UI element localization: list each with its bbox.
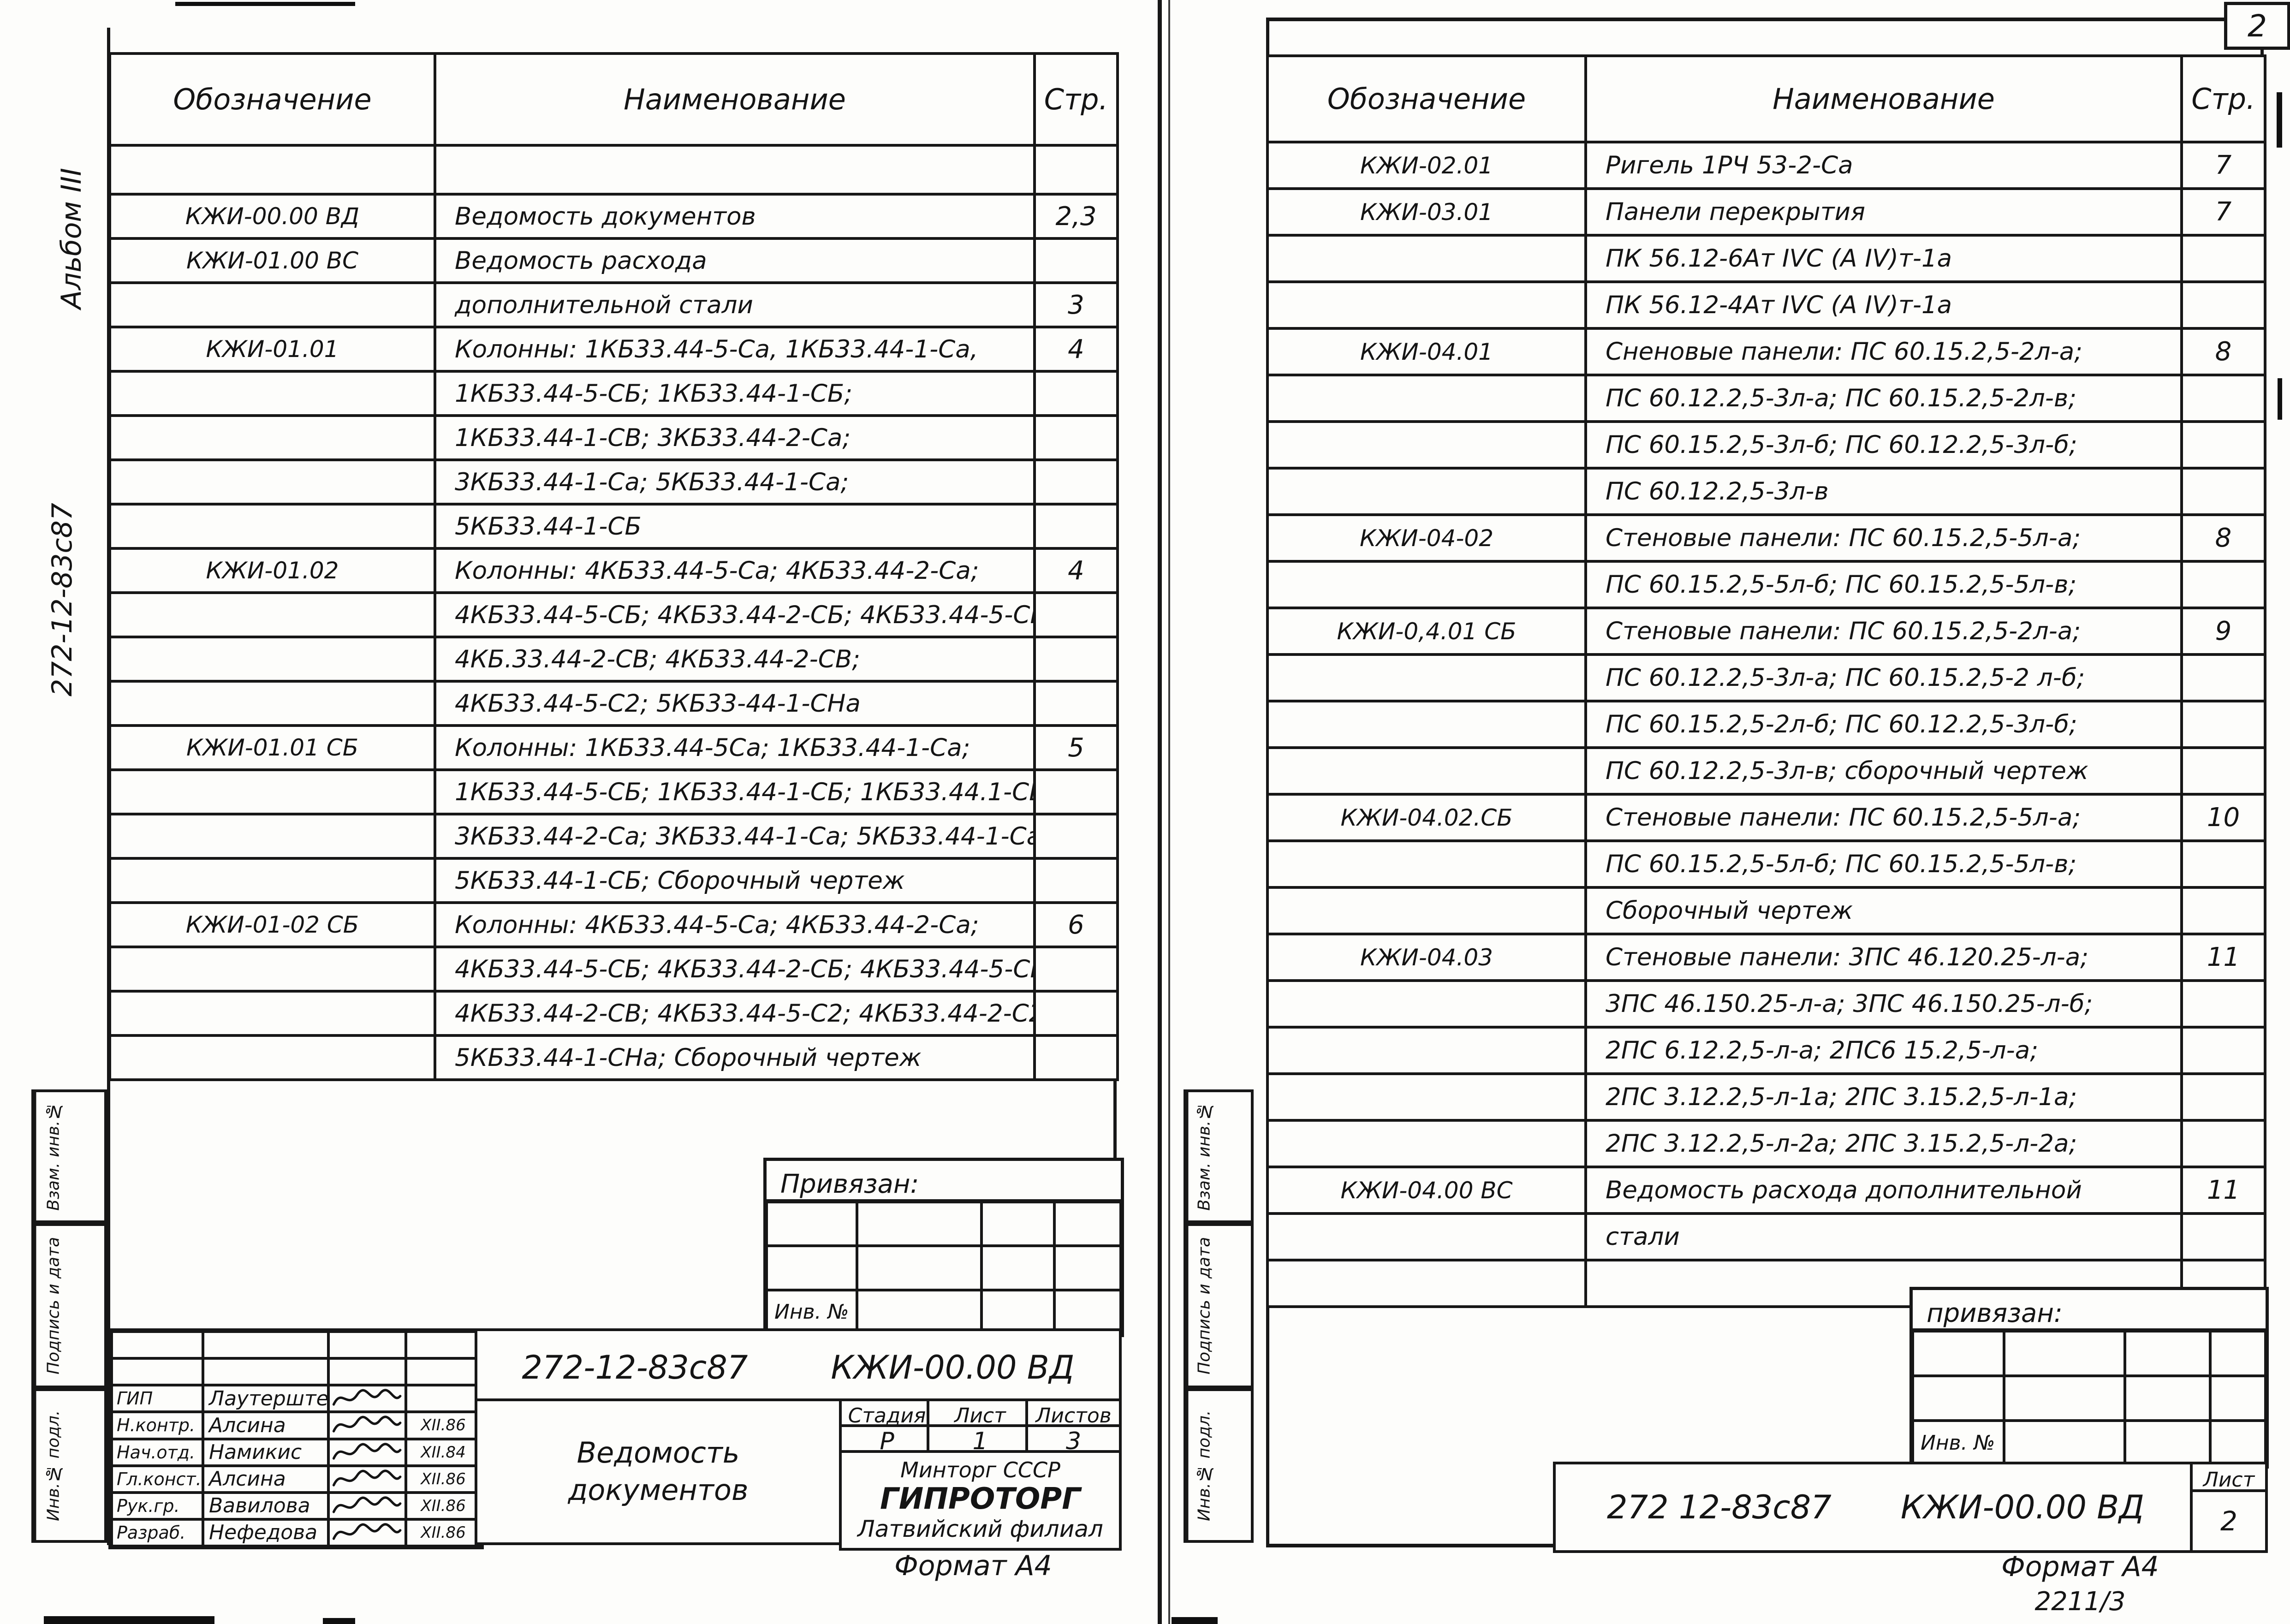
table-cell: 1КБ33.44-5-СБ; 1КБ33.44-1-СБ; 1КБ33.44.1… bbox=[435, 770, 1035, 814]
stamp-label: Взам. инв.№ bbox=[34, 1092, 71, 1220]
stamp-empty-cell bbox=[112, 1332, 203, 1358]
right-table-header: ОбозначениеНаименованиеСтр. bbox=[1267, 56, 2265, 142]
table-cell bbox=[2182, 1214, 2265, 1260]
signature-scribble-icon bbox=[328, 1412, 406, 1439]
table-cell: 4КБ33.44-2-СВ; 4КБ33.44-5-С2; 4КБ33.44-2… bbox=[435, 991, 1035, 1035]
table-cell bbox=[110, 770, 435, 814]
table-cell: 5КБ33.44-1-СБ bbox=[435, 504, 1035, 548]
left-table: ОбозначениеНаименованиеСтр. КЖИ-00.00 ВД… bbox=[108, 52, 1119, 1081]
table-row: ПС 60.12.2,5-3л-в bbox=[1267, 468, 2265, 515]
table-cell: ПС 60.12.2,5-3л-а; ПС 60.15.2,5-2л-в; bbox=[1586, 375, 2182, 422]
table-cell bbox=[1035, 371, 1118, 416]
table-cell bbox=[1035, 460, 1118, 504]
table-cell: 3 bbox=[1035, 283, 1118, 327]
table-row: КЖИ-01.01Колонны: 1КБ33.44-5-Са, 1КБ33.4… bbox=[110, 327, 1118, 371]
table-row: 3КБ33.44-1-Са; 5КБ33.44-1-Са; bbox=[110, 460, 1118, 504]
table-row: КЖИ-01-02 СБКолонны: 4КБ33.44-5-Са; 4КБ3… bbox=[110, 903, 1118, 947]
table-cell bbox=[1267, 468, 1586, 515]
binding-cell bbox=[2210, 1376, 2266, 1421]
table-cell: Колонны: 4КБ33.44-5-Са; 4КБ33.44-2-Са; bbox=[435, 548, 1035, 593]
table-row: ПС 60.15.2,5-5л-б; ПС 60.15.2,5-5л-в; bbox=[1267, 841, 2265, 887]
binding-cell bbox=[2210, 1421, 2266, 1465]
stamp-empty-cell bbox=[203, 1358, 328, 1385]
table-cell: Стеновые панели: ПС 60.15.2,5-5л-а; bbox=[1586, 515, 2182, 561]
table-cell bbox=[2182, 1027, 2265, 1074]
table-cell bbox=[1267, 981, 1586, 1027]
table-cell: Панели перекрытия bbox=[1586, 189, 2182, 235]
table-cell: Колонны: 1КБ33.44-5Са; 1КБ33.44-1-Са; bbox=[435, 726, 1035, 770]
table-cell bbox=[1267, 748, 1586, 794]
binding-cell bbox=[1913, 1376, 2004, 1421]
table-cell bbox=[1267, 1074, 1586, 1120]
table-cell bbox=[2182, 1074, 2265, 1120]
stamp-empty-cell bbox=[71, 1092, 105, 1220]
left-signature-grid: ГИПЛаутерштейнН.контр.АлсинаXII.86Нач.от… bbox=[108, 1328, 484, 1549]
stamp-label: Взам. инв.№ bbox=[1186, 1092, 1220, 1220]
signature-name: Вавилова bbox=[203, 1493, 328, 1519]
table-row: КЖИ-04.01Сненовые панели: ПС 60.15.2,5-2… bbox=[1267, 328, 2265, 375]
table-cell bbox=[2182, 1120, 2265, 1167]
left-margin-stamp-vzam: Взам. инв.№ bbox=[31, 1089, 107, 1223]
table-cell bbox=[110, 814, 435, 858]
signature-name: Лаутерштейн bbox=[203, 1385, 328, 1412]
left-table-header: ОбозначениеНаименованиеСтр. bbox=[110, 54, 1118, 145]
signature-date bbox=[406, 1385, 481, 1412]
doc-code: КЖИ-00.00 ВД bbox=[831, 1349, 1074, 1386]
table-cell: 2ПС 3.12.2,5-л-1а; 2ПС 3.15.2,5-л-1а; bbox=[1586, 1074, 2182, 1120]
table-cell: КЖИ-0,4.01 СБ bbox=[1267, 608, 1586, 654]
table-cell: 4 bbox=[1035, 327, 1118, 371]
left-format-note: Формат А4 bbox=[853, 1550, 1093, 1582]
binding-cell bbox=[2004, 1421, 2125, 1465]
table-row: ПС 60.12.2,5-3л-а; ПС 60.15.2,5-2 л-б; bbox=[1267, 654, 2265, 701]
org-line2: ГИПРОТОРГ bbox=[880, 1482, 1081, 1517]
binding-cell bbox=[2125, 1331, 2210, 1376]
table-cell bbox=[1035, 1035, 1118, 1080]
table-row: ПС 60.12.2,5-3л-в; сборочный чертеж bbox=[1267, 748, 2265, 794]
table-row: ПС 60.15.2,5-5л-б; ПС 60.15.2,5-5л-в; bbox=[1267, 561, 2265, 608]
table-row: 5КБ33.44-1-СБ; Сборочный чертеж bbox=[110, 858, 1118, 903]
table-cell: 10 bbox=[2182, 794, 2265, 841]
table-cell bbox=[1267, 1214, 1586, 1260]
table-cell bbox=[1035, 145, 1118, 194]
table-row: 1КБ33.44-5-СБ; 1КБ33.44-1-СБ; 1КБ33.44.1… bbox=[110, 770, 1118, 814]
table-cell: КЖИ-00.00 ВД bbox=[110, 194, 435, 238]
scan-artifact bbox=[44, 1616, 214, 1624]
table-cell: 4 bbox=[1035, 548, 1118, 593]
right-format-note: Формат А4 bbox=[1951, 1551, 2209, 1583]
table-cell bbox=[435, 145, 1035, 194]
doc-code: КЖИ-00.00 ВД bbox=[1901, 1488, 2144, 1526]
binding-cell bbox=[857, 1246, 981, 1290]
table-cell bbox=[2182, 841, 2265, 887]
table-cell bbox=[110, 947, 435, 991]
table-cell bbox=[2182, 375, 2265, 422]
table-cell bbox=[110, 681, 435, 726]
stamp-empty-cell bbox=[406, 1332, 481, 1358]
column-header: Стр. bbox=[2182, 56, 2265, 142]
handwritten-sheet-ref: 2211/3 bbox=[1983, 1587, 2177, 1617]
table-cell: 3КБ33.44-1-Са; 5КБ33.44-1-Са; bbox=[435, 460, 1035, 504]
table-row: 4КБ33.44-5-СБ; 4КБ33.44-2-СБ; 4КБ33.44-5… bbox=[110, 593, 1118, 637]
table-cell bbox=[2182, 282, 2265, 328]
table-cell: КЖИ-01.00 ВС bbox=[110, 238, 435, 283]
table-cell bbox=[2182, 422, 2265, 468]
table-row: Сборочный чертеж bbox=[1267, 887, 2265, 934]
signature-scribble-icon bbox=[328, 1466, 406, 1493]
table-row: КЖИ-04.03Стеновые панели: 3ПС 46.120.25-… bbox=[1267, 934, 2265, 981]
org-line1: Минторг СССР bbox=[900, 1458, 1060, 1482]
right-binding-box: привязан: Инв. № bbox=[1909, 1287, 2269, 1469]
binding-cell bbox=[1054, 1246, 1121, 1290]
table-row: 2ПС 6.12.2,5-л-а; 2ПС6 15.2,5-л-а; bbox=[1267, 1027, 2265, 1074]
table-cell bbox=[1035, 681, 1118, 726]
table-row: ПК 56.12-4Ат IVС (А IV)т-1а bbox=[1267, 282, 2265, 328]
binding-inv-label: Инв. № bbox=[767, 1290, 857, 1334]
table-row: КЖИ-02.01Ригель 1РЧ 53-2-Са7 bbox=[1267, 142, 2265, 189]
table-row: дополнительной стали3 bbox=[110, 283, 1118, 327]
table-cell bbox=[110, 1035, 435, 1080]
table-cell bbox=[1267, 282, 1586, 328]
table-cell: ПС 60.12.2,5-3л-а; ПС 60.15.2,5-2 л-б; bbox=[1586, 654, 2182, 701]
signature-date: XII.86 bbox=[406, 1493, 481, 1519]
page-edge-line bbox=[1158, 0, 1162, 1624]
left-margin-stamp-podpis: Подпись и дата bbox=[31, 1223, 107, 1388]
table-cell bbox=[110, 460, 435, 504]
table-cell: Ведомость расхода дополнительной bbox=[1586, 1167, 2182, 1214]
page-number: 2 bbox=[2248, 8, 2267, 44]
table-cell: Ведомость документов bbox=[435, 194, 1035, 238]
signature-scribble-icon bbox=[328, 1519, 406, 1546]
signature-date: XII.86 bbox=[406, 1466, 481, 1493]
stamp-empty-cell bbox=[1220, 1092, 1251, 1220]
table-row: 4КБ.33.44-2-СВ; 4КБ33.44-2-СВ; bbox=[110, 637, 1118, 681]
table-cell: дополнительной стали bbox=[435, 283, 1035, 327]
signature-role: Н.контр. bbox=[112, 1412, 203, 1439]
left-margin-stamp-inv: Инв.№ подл. bbox=[31, 1388, 107, 1543]
table-row: 3КБ33.44-2-Са; 3КБ33.44-1-Са; 5КБ33.44-1… bbox=[110, 814, 1118, 858]
table-cell bbox=[1035, 947, 1118, 991]
table-cell: КЖИ-01-02 СБ bbox=[110, 903, 435, 947]
table-cell: КЖИ-01.01 СБ bbox=[110, 726, 435, 770]
column-header: Обозначение bbox=[1267, 56, 1586, 142]
table-row: 2ПС 3.12.2,5-л-2а; 2ПС 3.15.2,5-л-2а; bbox=[1267, 1120, 2265, 1167]
table-cell: 5 bbox=[1035, 726, 1118, 770]
binding-cell bbox=[1054, 1290, 1121, 1334]
table-row: КЖИ-04.02.СБСтеновые панели: ПС 60.15.2,… bbox=[1267, 794, 2265, 841]
binding-cell bbox=[767, 1246, 857, 1290]
table-cell: КЖИ-04-02 bbox=[1267, 515, 1586, 561]
table-cell: ПС 60.12.2,5-3л-в bbox=[1586, 468, 2182, 515]
table-row bbox=[110, 145, 1118, 194]
table-cell bbox=[1267, 701, 1586, 748]
table-cell bbox=[1267, 561, 1586, 608]
table-row: ПК 56.12-6Ат IVС (А IV)т-1а bbox=[1267, 235, 2265, 282]
signature-scribble-icon bbox=[328, 1439, 406, 1466]
table-cell: 6 bbox=[1035, 903, 1118, 947]
stamp-empty-cell bbox=[328, 1332, 406, 1358]
table-cell: 4КБ33.44-5-СБ; 4КБ33.44-2-СБ; 4КБ33.44-5… bbox=[435, 947, 1035, 991]
sheet-value: 2 bbox=[2220, 1505, 2237, 1537]
table-cell: Сборочный чертеж bbox=[1586, 887, 2182, 934]
table-cell: ПС 60.15.2,5-2л-б; ПС 60.12.2,5-3л-б; bbox=[1586, 701, 2182, 748]
table-row: КЖИ-00.00 ВДВедомость документов2,3 bbox=[110, 194, 1118, 238]
binding-cell bbox=[2125, 1421, 2210, 1465]
table-cell bbox=[1035, 637, 1118, 681]
table-cell bbox=[2182, 981, 2265, 1027]
signature-role: Гл.конст. bbox=[112, 1466, 203, 1493]
signature-name: Намикис bbox=[203, 1439, 328, 1466]
table-cell bbox=[1267, 841, 1586, 887]
table-cell bbox=[110, 504, 435, 548]
table-cell: КЖИ-04.01 bbox=[1267, 328, 1586, 375]
table-cell: стали bbox=[1586, 1214, 2182, 1260]
table-row: ПС 60.15.2,5-3л-б; ПС 60.12.2,5-3л-б; bbox=[1267, 422, 2265, 468]
right-margin-stamp-podpis: Подпись и дата bbox=[1184, 1223, 1254, 1388]
table-cell bbox=[1267, 235, 1586, 282]
table-cell bbox=[110, 637, 435, 681]
signature-scribble-icon bbox=[328, 1385, 406, 1412]
left-designation-bar: 272-12-83с87 КЖИ-00.00 ВД bbox=[475, 1328, 1122, 1407]
table-cell: 11 bbox=[2182, 934, 2265, 981]
sheet-label: Лист bbox=[2203, 1468, 2255, 1492]
signature-role: ГИП bbox=[112, 1385, 203, 1412]
table-cell bbox=[1035, 593, 1118, 637]
column-header: Обозначение bbox=[110, 54, 435, 145]
binding-cell bbox=[1913, 1331, 2004, 1376]
column-header: Стр. bbox=[1035, 54, 1118, 145]
signature-role: Нач.отд. bbox=[112, 1439, 203, 1466]
table-row: 4КБ33.44-5-С2; 5КБ33-44-1-СНа bbox=[110, 681, 1118, 726]
table-cell bbox=[1035, 238, 1118, 283]
table-cell: 9 bbox=[2182, 608, 2265, 654]
table-cell: КЖИ-04.00 ВС bbox=[1267, 1167, 1586, 1214]
table-cell: 5КБ33.44-1-СНа; Сборочный чертеж bbox=[435, 1035, 1035, 1080]
binding-cell bbox=[2210, 1331, 2266, 1376]
table-cell: 2ПС 3.12.2,5-л-2а; 2ПС 3.15.2,5-л-2а; bbox=[1586, 1120, 2182, 1167]
org-line3: Латвийский филиал bbox=[857, 1516, 1103, 1543]
table-cell: 8 bbox=[2182, 328, 2265, 375]
stamp-empty-cell bbox=[1220, 1391, 1251, 1540]
signature-scribble-icon bbox=[328, 1493, 406, 1519]
stage-label: Стадия bbox=[848, 1404, 926, 1428]
scan-artifact bbox=[2278, 378, 2282, 420]
table-row: КЖИ-0,4.01 СБСтеновые панели: ПС 60.15.2… bbox=[1267, 608, 2265, 654]
binding-cell bbox=[1054, 1202, 1121, 1246]
right-designation-bar: 272 12-83с87 КЖИ-00.00 ВД bbox=[1553, 1462, 2198, 1553]
table-cell: ПС 60.15.2,5-5л-б; ПС 60.15.2,5-5л-в; bbox=[1586, 841, 2182, 887]
binding-cell bbox=[981, 1202, 1054, 1246]
table-cell bbox=[110, 283, 435, 327]
table-row: 5КБ33.44-1-СНа; Сборочный чертеж bbox=[110, 1035, 1118, 1080]
table-cell: 2,3 bbox=[1035, 194, 1118, 238]
table-cell: 7 bbox=[2182, 142, 2265, 189]
doc-title: Ведомость документов bbox=[533, 1434, 784, 1509]
table-cell bbox=[110, 593, 435, 637]
table-cell: ПК 56.12-4Ат IVС (А IV)т-1а bbox=[1586, 282, 2182, 328]
table-cell: Стеновые панели: ПС 60.15.2,5-2л-а; bbox=[1586, 608, 2182, 654]
scan-artifact bbox=[2277, 92, 2282, 148]
page-edge-line2 bbox=[1168, 0, 1170, 1624]
table-cell bbox=[110, 858, 435, 903]
table-row: ПС 60.15.2,5-2л-б; ПС 60.12.2,5-3л-б; bbox=[1267, 701, 2265, 748]
stamp-label: Инв.№ подл. bbox=[34, 1391, 71, 1540]
right-frame-top bbox=[1266, 18, 2264, 21]
stamp-empty-cell bbox=[203, 1332, 328, 1358]
table-cell bbox=[2182, 561, 2265, 608]
table-cell: Ригель 1РЧ 53-2-Са bbox=[1586, 142, 2182, 189]
table-row: 2ПС 3.12.2,5-л-1а; 2ПС 3.15.2,5-л-1а; bbox=[1267, 1074, 2265, 1120]
table-cell bbox=[1035, 858, 1118, 903]
scan-artifact bbox=[175, 2, 355, 6]
right-margin-stamp-vzam: Взам. инв.№ bbox=[1184, 1089, 1254, 1223]
signature-role: Рук.гр. bbox=[112, 1493, 203, 1519]
table-row: 1КБ33.44-1-СВ; 3КБ33.44-2-Са; bbox=[110, 416, 1118, 460]
table-row: 4КБ33.44-2-СВ; 4КБ33.44-5-С2; 4КБ33.44-2… bbox=[110, 991, 1118, 1035]
table-row: КЖИ-04-02Стеновые панели: ПС 60.15.2,5-5… bbox=[1267, 515, 2265, 561]
table-cell: 3КБ33.44-2-Са; 3КБ33.44-1-Са; 5КБ33.44-1… bbox=[435, 814, 1035, 858]
table-cell: Ведомость расхода bbox=[435, 238, 1035, 283]
binding-cell bbox=[2004, 1376, 2125, 1421]
table-cell bbox=[2182, 235, 2265, 282]
table-cell bbox=[2182, 701, 2265, 748]
column-header: Наименование bbox=[435, 54, 1035, 145]
table-cell: КЖИ-03.01 bbox=[1267, 189, 1586, 235]
binding-cell bbox=[767, 1202, 857, 1246]
table-cell bbox=[110, 416, 435, 460]
table-cell bbox=[1267, 1120, 1586, 1167]
table-cell bbox=[1267, 887, 1586, 934]
table-cell: ПС 60.15.2,5-5л-б; ПС 60.15.2,5-5л-в; bbox=[1586, 561, 2182, 608]
table-cell bbox=[1267, 1260, 1586, 1307]
binding-title: привязан: bbox=[1913, 1290, 2266, 1331]
table-cell: КЖИ-01.02 bbox=[110, 548, 435, 593]
table-row: КЖИ-01.01 СБКолонны: 1КБ33.44-5Са; 1КБ33… bbox=[110, 726, 1118, 770]
table-row: 3ПС 46.150.25-л-а; 3ПС 46.150.25-л-б; bbox=[1267, 981, 2265, 1027]
table-cell: КЖИ-04.02.СБ bbox=[1267, 794, 1586, 841]
stamp-empty-cell bbox=[1220, 1226, 1251, 1386]
left-doc-title-cell: Ведомость документов bbox=[475, 1398, 842, 1545]
binding-cell bbox=[2004, 1331, 2125, 1376]
table-cell: ПС 60.15.2,5-3л-б; ПС 60.12.2,5-3л-б; bbox=[1586, 422, 2182, 468]
right-sheet-value-cell: 2 bbox=[2190, 1489, 2268, 1553]
table-cell: ПС 60.12.2,5-3л-в; сборочный чертеж bbox=[1586, 748, 2182, 794]
table-row: 1КБ33.44-5-СБ; 1КБ33.44-1-СБ; bbox=[110, 371, 1118, 416]
scan-artifact bbox=[1172, 1617, 1218, 1624]
table-cell: Колонны: 4КБ33.44-5-Са; 4КБ33.44-2-Са; bbox=[435, 903, 1035, 947]
table-cell bbox=[1035, 991, 1118, 1035]
stamp-label: Подпись и дата bbox=[1186, 1226, 1220, 1386]
stamp-label: Подпись и дата bbox=[34, 1226, 71, 1386]
table-row: ПС 60.12.2,5-3л-а; ПС 60.15.2,5-2л-в; bbox=[1267, 375, 2265, 422]
table-cell bbox=[1035, 814, 1118, 858]
column-header: Наименование bbox=[1586, 56, 2182, 142]
table-cell bbox=[1035, 770, 1118, 814]
table-cell: 5КБ33.44-1-СБ; Сборочный чертеж bbox=[435, 858, 1035, 903]
table-cell: КЖИ-02.01 bbox=[1267, 142, 1586, 189]
table-row: КЖИ-04.00 ВСВедомость расхода дополнител… bbox=[1267, 1167, 2265, 1214]
table-cell: 1КБ33.44-1-СВ; 3КБ33.44-2-Са; bbox=[435, 416, 1035, 460]
binding-grid: Инв. № bbox=[767, 1202, 1121, 1334]
signature-name: Алсина bbox=[203, 1412, 328, 1439]
binding-cell bbox=[2125, 1376, 2210, 1421]
right-table: ОбозначениеНаименованиеСтр. КЖИ-02.01Риг… bbox=[1266, 54, 2266, 1308]
table-cell: Стеновые панели: ПС 60.15.2,5-5л-а; bbox=[1586, 794, 2182, 841]
doc-designation: 272 12-83с87 bbox=[1607, 1488, 1832, 1526]
right-margin-stamp-inv: Инв.№ подл. bbox=[1184, 1388, 1254, 1543]
signature-date: XII.86 bbox=[406, 1412, 481, 1439]
table-cell: 4КБ33.44-5-С2; 5КБ33-44-1-СНа bbox=[435, 681, 1035, 726]
table-cell bbox=[110, 145, 435, 194]
stamp-empty-cell bbox=[406, 1358, 481, 1385]
table-cell bbox=[1267, 654, 1586, 701]
scanned-document: ОбозначениеНаименованиеСтр. КЖИ-00.00 ВД… bbox=[0, 0, 2290, 1624]
table-cell: КЖИ-04.03 bbox=[1267, 934, 1586, 981]
table-row: 4КБ33.44-5-СБ; 4КБ33.44-2-СБ; 4КБ33.44-5… bbox=[110, 947, 1118, 991]
stamp-empty-cell bbox=[71, 1226, 105, 1386]
organization-cell: Минторг СССР ГИПРОТОРГ Латвийский филиал bbox=[839, 1450, 1122, 1551]
scan-artifact bbox=[323, 1618, 355, 1624]
corner-page-number: 2 bbox=[2224, 2, 2290, 50]
stamp-empty-cell bbox=[112, 1358, 203, 1385]
table-cell bbox=[110, 991, 435, 1035]
doc-designation: 272-12-83с87 bbox=[522, 1349, 748, 1386]
table-cell: 3ПС 46.150.25-л-а; 3ПС 46.150.25-л-б; bbox=[1586, 981, 2182, 1027]
table-cell: 4КБ33.44-5-СБ; 4КБ33.44-2-СБ; 4КБ33.44-5… bbox=[435, 593, 1035, 637]
table-row: КЖИ-03.01Панели перекрытия7 bbox=[1267, 189, 2265, 235]
binding-grid: Инв. № bbox=[1913, 1331, 2266, 1465]
stamp-empty-cell bbox=[328, 1358, 406, 1385]
sheets-label: Листов bbox=[1035, 1404, 1111, 1428]
table-cell: Сненовые панели: ПС 60.15.2,5-2л-а; bbox=[1586, 328, 2182, 375]
table-cell bbox=[110, 371, 435, 416]
signature-name: Нефедова bbox=[203, 1519, 328, 1546]
doc-code-margin-note: 272-12-83с87 bbox=[46, 466, 78, 696]
left-table-body: КЖИ-00.00 ВДВедомость документов2,3КЖИ-0… bbox=[110, 145, 1118, 1080]
table-row: КЖИ-01.02Колонны: 4КБ33.44-5-Са; 4КБ33.4… bbox=[110, 548, 1118, 593]
table-row: КЖИ-01.00 ВСВедомость расхода bbox=[110, 238, 1118, 283]
table-cell bbox=[2182, 654, 2265, 701]
table-cell: 11 bbox=[2182, 1167, 2265, 1214]
table-row: стали bbox=[1267, 1214, 2265, 1260]
table-cell bbox=[1035, 416, 1118, 460]
table-cell: Колонны: 1КБ33.44-5-Са, 1КБ33.44-1-Са, bbox=[435, 327, 1035, 371]
sheet-label: Лист bbox=[954, 1404, 1006, 1428]
table-cell bbox=[1035, 504, 1118, 548]
table-cell bbox=[1267, 1027, 1586, 1074]
stamp-empty-cell bbox=[71, 1391, 105, 1540]
table-cell: 4КБ.33.44-2-СВ; 4КБ33.44-2-СВ; bbox=[435, 637, 1035, 681]
signature-name: Алсина bbox=[203, 1466, 328, 1493]
binding-cell bbox=[981, 1290, 1054, 1334]
left-binding-box: Привязан: Инв. № bbox=[763, 1158, 1124, 1337]
table-cell: Стеновые панели: 3ПС 46.120.25-л-а; bbox=[1586, 934, 2182, 981]
stamp-label: Инв.№ подл. bbox=[1186, 1391, 1220, 1540]
table-cell: ПК 56.12-6Ат IVС (А IV)т-1а bbox=[1586, 235, 2182, 282]
right-table-body: КЖИ-02.01Ригель 1РЧ 53-2-Са7КЖИ-03.01Пан… bbox=[1267, 142, 2265, 1307]
table-cell bbox=[1267, 422, 1586, 468]
binding-cell bbox=[857, 1202, 981, 1246]
album-note: Альбом III bbox=[55, 115, 88, 309]
table-cell: 2ПС 6.12.2,5-л-а; 2ПС6 15.2,5-л-а; bbox=[1586, 1027, 2182, 1074]
binding-title: Привязан: bbox=[767, 1161, 1121, 1202]
table-cell bbox=[2182, 887, 2265, 934]
table-cell: КЖИ-01.01 bbox=[110, 327, 435, 371]
signature-role: Разраб. bbox=[112, 1519, 203, 1546]
table-row: 5КБ33.44-1-СБ bbox=[110, 504, 1118, 548]
signature-date: XII.84 bbox=[406, 1439, 481, 1466]
signature-date: XII.86 bbox=[406, 1519, 481, 1546]
